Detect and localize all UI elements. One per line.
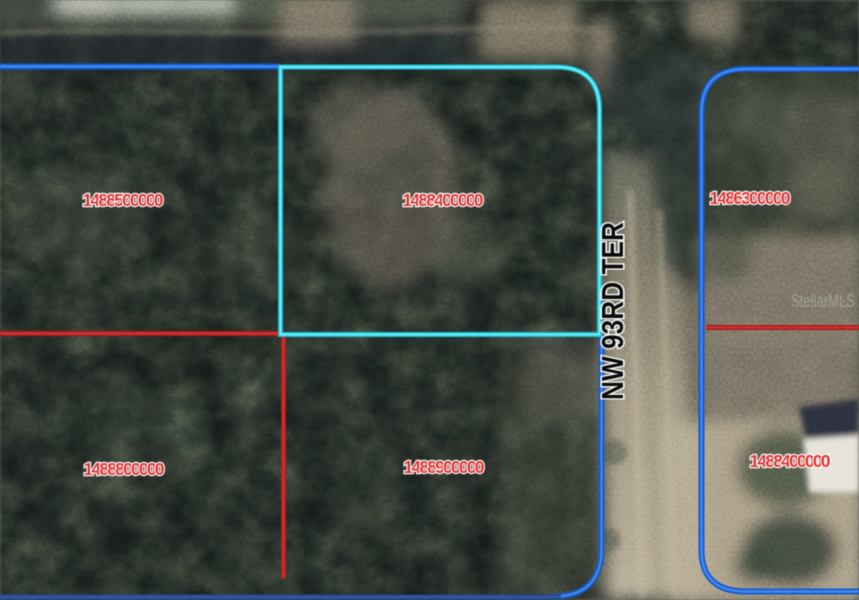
svg-text:StellarMLS: StellarMLS bbox=[791, 291, 855, 311]
svg-text:1486300000: 1486300000 bbox=[710, 188, 791, 208]
svg-text:NW 93RD TER: NW 93RD TER bbox=[595, 222, 630, 400]
svg-text:1488400000: 1488400000 bbox=[750, 451, 831, 471]
svg-text:1488400000: 1488400000 bbox=[403, 190, 484, 210]
svg-text:1488500000: 1488500000 bbox=[83, 190, 164, 210]
svg-text:1488900000: 1488900000 bbox=[404, 457, 485, 477]
svg-text:1488800000: 1488800000 bbox=[84, 459, 165, 479]
